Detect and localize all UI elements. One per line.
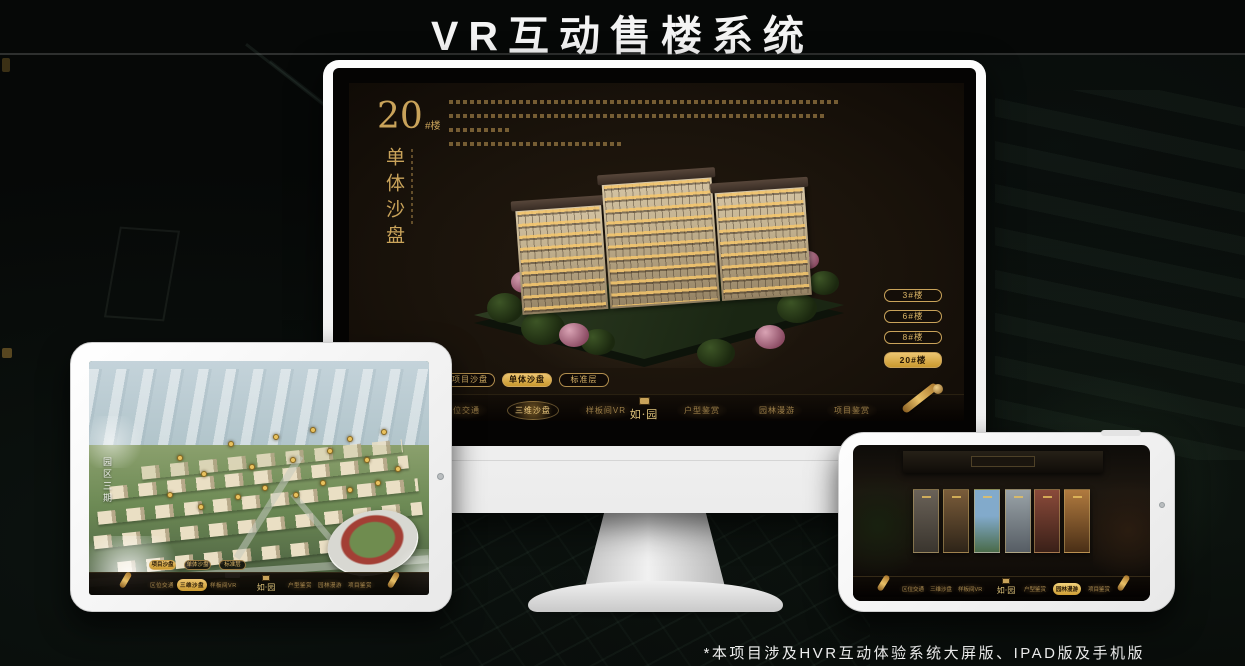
building-marker[interactable] bbox=[375, 480, 381, 486]
ruyuan-logo: 如·园 bbox=[991, 578, 1021, 597]
tree bbox=[697, 339, 735, 367]
ruyuan-logo: 如·园 bbox=[621, 396, 667, 421]
tree bbox=[809, 271, 839, 295]
menu-item[interactable]: 区位交通 bbox=[899, 583, 927, 595]
menu-item[interactable]: 项目鉴赏 bbox=[1085, 583, 1113, 595]
building-marker[interactable] bbox=[327, 448, 333, 454]
tree bbox=[521, 311, 565, 345]
sandbox-subtab[interactable]: 标准层 bbox=[219, 560, 246, 570]
building-marker[interactable] bbox=[364, 457, 370, 463]
menu-item[interactable]: 区位交通 bbox=[147, 579, 177, 591]
building-marker[interactable] bbox=[228, 441, 234, 447]
menu-item[interactable]: 样板间VR bbox=[955, 583, 985, 595]
sandbox-subtab[interactable]: 单体沙盘 bbox=[502, 373, 552, 387]
building-marker[interactable] bbox=[198, 504, 204, 510]
scene-panel[interactable] bbox=[1064, 489, 1090, 553]
menu-left-group: 区位交通三维沙盘样板间VR bbox=[437, 401, 633, 419]
sandbox-subtab[interactable]: 标准层 bbox=[559, 373, 609, 387]
building-body bbox=[512, 145, 812, 315]
menu-item[interactable]: 三维沙盘 bbox=[177, 579, 207, 591]
building-marker[interactable] bbox=[293, 492, 299, 498]
building-marker[interactable] bbox=[310, 427, 316, 433]
interior-shelf bbox=[1093, 473, 1150, 588]
menu-item[interactable]: 户型鉴赏 bbox=[677, 402, 727, 419]
tablet-camera-icon bbox=[437, 473, 444, 480]
poster-canvas: VR互动售楼系统 *本项目涉及HVR互动体验系统大屏版、IPAD版及手机版 20… bbox=[0, 0, 1245, 666]
building-marker[interactable] bbox=[167, 492, 173, 498]
building-marker[interactable] bbox=[177, 455, 183, 461]
menu-item[interactable]: 园林漫游 bbox=[752, 402, 802, 419]
logo-text: 如·园 bbox=[249, 582, 283, 593]
building-number: 20 bbox=[377, 99, 423, 135]
seal-icon bbox=[262, 575, 270, 581]
building-marker[interactable] bbox=[201, 471, 207, 477]
seal-icon bbox=[1002, 578, 1010, 584]
menu-item[interactable]: 项目鉴赏 bbox=[827, 402, 877, 419]
menu-item[interactable]: 三维沙盘 bbox=[507, 401, 559, 420]
floor-button[interactable]: 6#楼 bbox=[884, 310, 942, 323]
scene-panel[interactable] bbox=[1005, 489, 1031, 553]
background-small-logo bbox=[2, 348, 12, 358]
scroll-ornament-icon[interactable] bbox=[895, 380, 945, 420]
monitor-stand-neck bbox=[585, 511, 725, 587]
building-marker[interactable] bbox=[381, 429, 387, 435]
menu-right-group: 户型鉴赏园林漫游项目鉴赏 bbox=[285, 578, 375, 592]
description-text-line bbox=[449, 128, 509, 132]
description-text-line bbox=[449, 100, 839, 104]
logo-text: 如·园 bbox=[621, 406, 667, 421]
seal-icon bbox=[639, 397, 650, 405]
phone-device: 区位交通三维沙盘样板间VR 如·园 户型鉴赏园林漫游项目鉴赏 bbox=[838, 432, 1175, 612]
scene-panel[interactable] bbox=[1034, 489, 1060, 553]
sandbox-subtab[interactable]: 项目沙盘 bbox=[445, 373, 495, 387]
menu-item[interactable]: 园林漫游 bbox=[315, 579, 345, 591]
building-marker[interactable] bbox=[262, 485, 268, 491]
area-label-vertical: 园区三期 bbox=[101, 457, 114, 505]
phone-side-button bbox=[1101, 430, 1141, 436]
sandbox-subtab[interactable]: 单体沙盘 bbox=[184, 560, 211, 570]
menu-right-group: 户型鉴赏园林漫游项目鉴赏 bbox=[677, 401, 877, 419]
phone-camera-icon bbox=[1159, 502, 1165, 508]
sandbox-subtab-group: 项目沙盘单体沙盘标准层 bbox=[445, 373, 625, 389]
menu-item[interactable]: 三维沙盘 bbox=[927, 583, 955, 595]
building-marker[interactable] bbox=[235, 494, 241, 500]
floor-button-group: 3#楼6#楼8#楼20#楼 bbox=[884, 289, 944, 369]
blossom-tree bbox=[559, 323, 589, 347]
menu-item[interactable]: 项目鉴赏 bbox=[345, 579, 375, 591]
scroll-end-icon bbox=[876, 574, 890, 592]
phone-menu-bar: 区位交通三维沙盘样板间VR 如·园 户型鉴赏园林漫游项目鉴赏 bbox=[853, 576, 1150, 597]
scroll-cap bbox=[933, 384, 943, 394]
foliage bbox=[853, 463, 918, 588]
floor-button[interactable]: 8#楼 bbox=[884, 331, 942, 344]
building-center bbox=[602, 175, 721, 308]
gate-plaque bbox=[971, 456, 1035, 467]
building-marker[interactable] bbox=[347, 487, 353, 493]
scene-panel[interactable] bbox=[913, 489, 939, 553]
menu-item[interactable]: 户型鉴赏 bbox=[1021, 583, 1049, 595]
tablet-device: 园区三期 项目沙盘单体沙盘标准层 区位交通三维沙盘样板间VR 如·园 户型鉴赏园… bbox=[70, 342, 452, 612]
building-marker[interactable] bbox=[249, 464, 255, 470]
scroll-end-icon bbox=[1116, 574, 1130, 592]
description-text-line bbox=[449, 114, 827, 118]
footnote-text: *本项目涉及HVR互动体验系统大屏版、IPAD版及手机版 bbox=[704, 642, 1145, 663]
sandbox-subtab[interactable]: 项目沙盘 bbox=[149, 560, 176, 570]
tablet-app-screen: 园区三期 项目沙盘单体沙盘标准层 区位交通三维沙盘样板间VR 如·园 户型鉴赏园… bbox=[89, 361, 429, 595]
page-subtitle-vertical: 单体沙盘 bbox=[381, 147, 408, 251]
tablet-menu-bar: 区位交通三维沙盘样板间VR 如·园 户型鉴赏园林漫游项目鉴赏 bbox=[89, 572, 429, 595]
floor-button[interactable]: 3#楼 bbox=[884, 289, 942, 302]
scene-panel[interactable] bbox=[943, 489, 969, 553]
building-marker[interactable] bbox=[320, 480, 326, 486]
phone-app-screen: 区位交通三维沙盘样板间VR 如·园 户型鉴赏园林漫游项目鉴赏 bbox=[853, 445, 1150, 601]
scroll-end-icon bbox=[119, 571, 133, 589]
menu-left-group: 区位交通三维沙盘样板间VR bbox=[147, 578, 239, 592]
building-marker[interactable] bbox=[347, 436, 353, 442]
floor-button[interactable]: 20#楼 bbox=[884, 352, 942, 368]
menu-left-group: 区位交通三维沙盘样板间VR bbox=[899, 582, 985, 595]
ruyuan-logo: 如·园 bbox=[249, 575, 283, 595]
page-title: VR互动售楼系统 bbox=[0, 2, 1245, 62]
menu-item[interactable]: 园林漫游 bbox=[1053, 583, 1081, 595]
building-3d-model[interactable] bbox=[459, 143, 859, 378]
tablet-subtab-group: 项目沙盘单体沙盘标准层 bbox=[149, 560, 309, 572]
menu-right-group: 户型鉴赏园林漫游项目鉴赏 bbox=[1021, 582, 1113, 595]
scroll-end-icon bbox=[387, 571, 401, 589]
tree bbox=[777, 293, 817, 323]
scene-panel[interactable] bbox=[974, 489, 1000, 553]
menu-item[interactable]: 户型鉴赏 bbox=[285, 579, 315, 591]
building-wing-right bbox=[714, 185, 811, 301]
vertical-caption-line bbox=[411, 149, 413, 227]
building-wing-left bbox=[515, 203, 608, 315]
menu-item[interactable]: 样板间VR bbox=[207, 579, 240, 591]
building-marker[interactable] bbox=[273, 434, 279, 440]
tree bbox=[487, 293, 523, 323]
building-marker[interactable] bbox=[290, 457, 296, 463]
building-number-suffix: #楼 bbox=[425, 117, 441, 132]
building-marker[interactable] bbox=[395, 466, 401, 472]
blossom-tree bbox=[755, 325, 785, 349]
logo-text: 如·园 bbox=[991, 585, 1021, 596]
